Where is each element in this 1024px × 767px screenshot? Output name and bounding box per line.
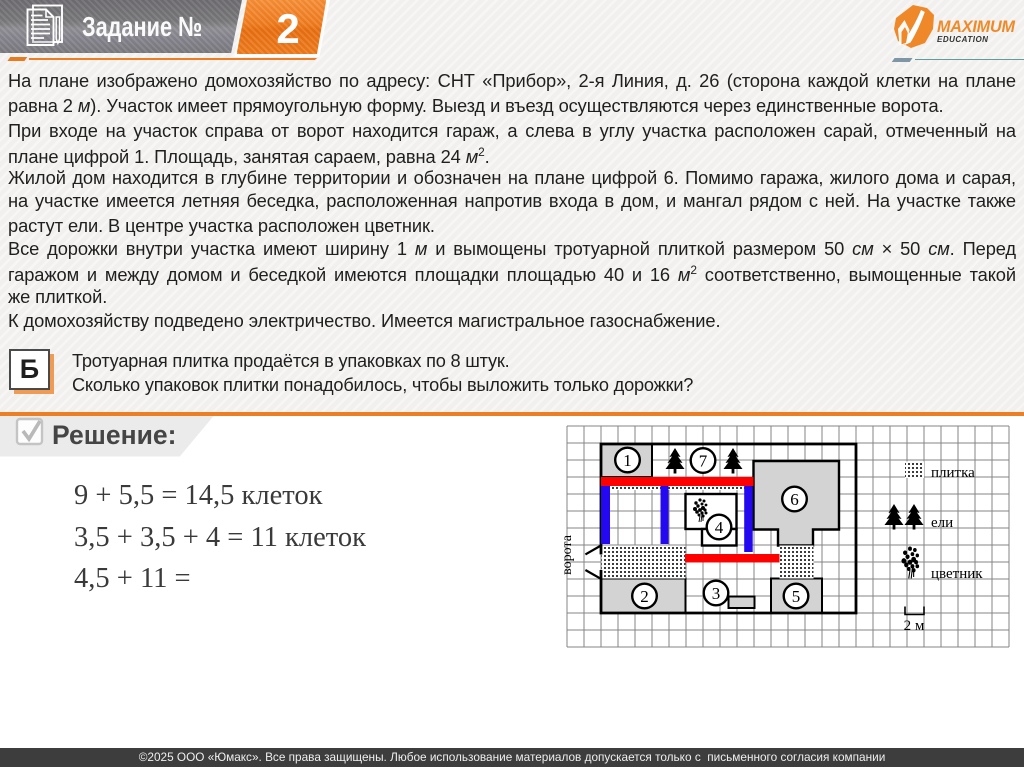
- svg-text:EDUCATION: EDUCATION: [937, 35, 988, 44]
- svg-text:2: 2: [640, 587, 649, 606]
- svg-text:7: 7: [699, 452, 708, 471]
- svg-text:1: 1: [623, 451, 632, 470]
- svg-text:5: 5: [792, 587, 801, 606]
- svg-text:2 м: 2 м: [904, 618, 925, 634]
- svg-text:плитка: плитка: [931, 465, 975, 481]
- svg-text:3: 3: [712, 584, 721, 603]
- svg-text:цветник: цветник: [931, 566, 983, 582]
- svg-text:ворота: ворота: [560, 534, 575, 575]
- svg-text:ели: ели: [931, 515, 953, 531]
- svg-text:4: 4: [715, 518, 724, 537]
- svg-text:6: 6: [790, 490, 799, 509]
- svg-text:MAXIMUM: MAXIMUM: [937, 18, 1015, 36]
